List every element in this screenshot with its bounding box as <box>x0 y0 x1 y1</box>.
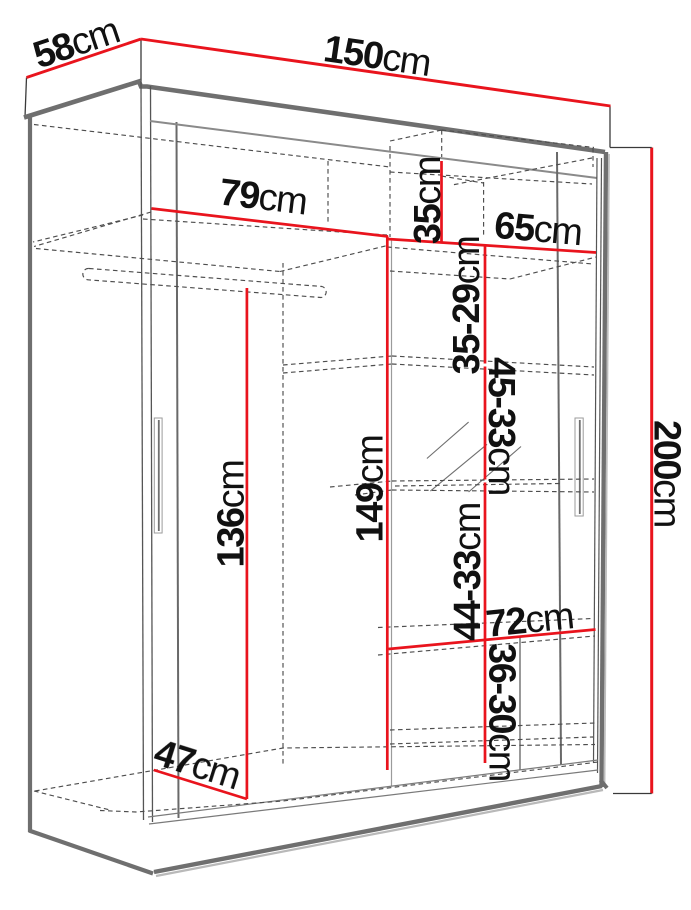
svg-text:65cm: 65cm <box>493 205 584 254</box>
svg-text:200cm: 200cm <box>646 420 688 527</box>
svg-text:36-30cm: 36-30cm <box>481 643 523 781</box>
svg-text:45-33cm: 45-33cm <box>480 357 522 495</box>
svg-text:35-29cm: 35-29cm <box>446 236 488 374</box>
svg-text:136cm: 136cm <box>211 460 253 567</box>
svg-text:44-33cm: 44-33cm <box>447 503 489 641</box>
svg-text:72cm: 72cm <box>484 595 575 646</box>
svg-text:149cm: 149cm <box>350 435 392 542</box>
svg-text:35cm: 35cm <box>407 157 449 244</box>
